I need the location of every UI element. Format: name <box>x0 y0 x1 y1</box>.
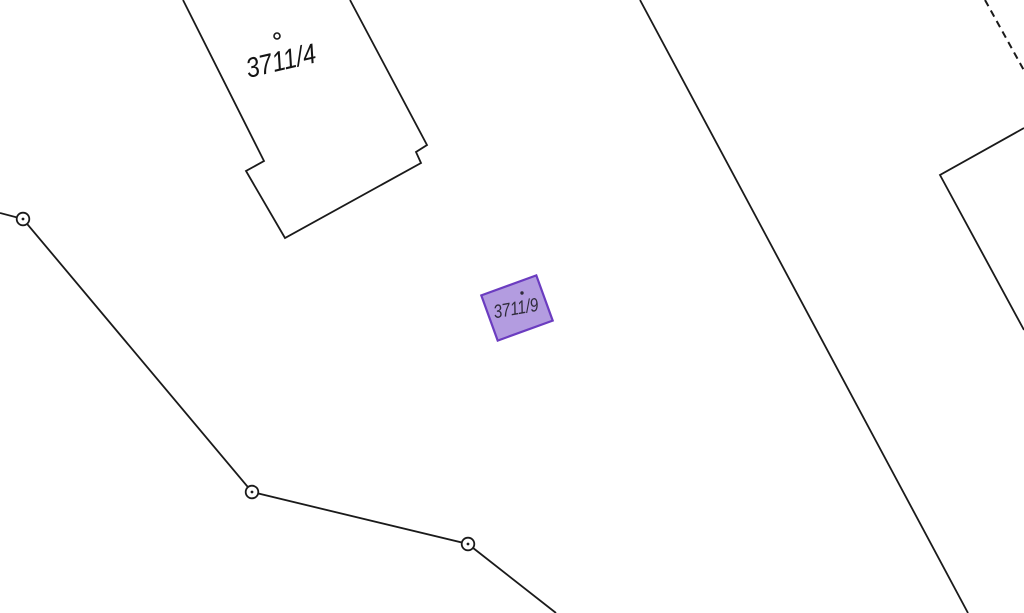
boundary-line-central <box>640 0 968 613</box>
survey-point-marker <box>17 213 30 226</box>
point-marker-3711-9 <box>520 291 523 294</box>
map-canvas[interactable]: 3711/4 3711/9 <box>0 0 1024 613</box>
boundary-line-right-parcel <box>940 128 1024 330</box>
survey-point-marker <box>246 486 259 499</box>
survey-point-marker <box>462 538 475 551</box>
building-outline-3711-4 <box>183 0 427 238</box>
boundary-line-dashed <box>985 0 1024 74</box>
boundary-polyline-left <box>0 213 556 613</box>
survey-point-markers <box>17 213 475 551</box>
point-marker-3711-4 <box>274 33 280 39</box>
parcel-label-3711-4: 3711/4 <box>243 37 319 84</box>
